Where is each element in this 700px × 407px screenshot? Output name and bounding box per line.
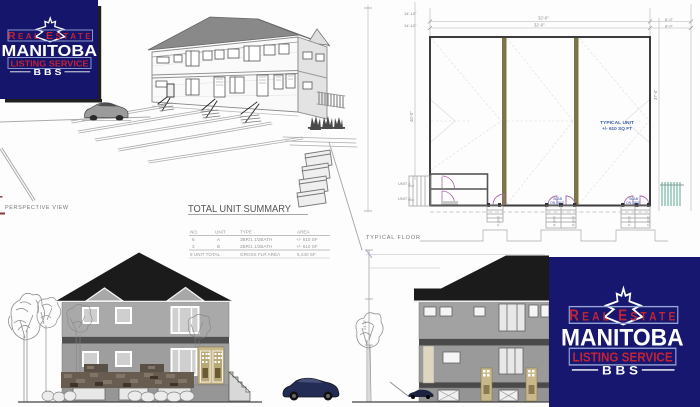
- svg-text:TYPE: TYPE: [240, 230, 252, 235]
- svg-text:8'-0": 8'-0": [665, 17, 674, 22]
- svg-text:3: 3: [192, 244, 195, 249]
- svg-text:GROSS FLR AREA: GROSS FLR AREA: [240, 252, 281, 257]
- svg-text:9 UNIT TOTAL: 9 UNIT TOTAL: [190, 252, 220, 257]
- svg-text:40'-0": 40'-0": [409, 111, 414, 122]
- svg-text:ON GRD: ON GRD: [626, 201, 641, 205]
- svg-text:14'-10": 14'-10": [404, 23, 417, 28]
- svg-text:32'-0": 32'-0": [534, 23, 545, 28]
- svg-text:2BR/1 1/2BATH: 2BR/1 1/2BATH: [240, 244, 272, 249]
- svg-text:PERSPECTIVE VIEW: PERSPECTIVE VIEW: [5, 205, 69, 211]
- svg-text:24'-0": 24'-0": [362, 319, 367, 330]
- svg-text:TYPICAL FLOOR: TYPICAL FLOOR: [366, 235, 421, 241]
- svg-text:+/- 610 SQ FT: +/- 610 SQ FT: [602, 126, 632, 131]
- svg-text:UNIT B: UNIT B: [571, 216, 575, 226]
- svg-text:3BR/1 1/2BATH: 3BR/1 1/2BATH: [240, 237, 272, 242]
- svg-text:NO.: NO.: [190, 230, 198, 235]
- svg-text:B: B: [217, 244, 220, 249]
- svg-text:32'-0": 32'-0": [538, 16, 549, 21]
- svg-text:ON GRD: ON GRD: [550, 201, 565, 205]
- svg-text:AREA: AREA: [297, 230, 310, 235]
- svg-text:TYPICAL UNIT: TYPICAL UNIT: [600, 120, 634, 125]
- svg-text:UNIT A: UNIT A: [496, 216, 500, 227]
- svg-text:+/- 610 SF: +/- 610 SF: [296, 237, 318, 242]
- svg-text:UNIT A: UNIT A: [646, 216, 650, 227]
- svg-text:UNIT A: UNIT A: [627, 216, 631, 227]
- svg-text:TOTAL UNIT SUMMARY: TOTAL UNIT SUMMARY: [188, 204, 291, 215]
- svg-text:37'-0": 37'-0": [653, 89, 658, 100]
- svg-text:8'-0": 8'-0": [665, 24, 674, 29]
- svg-text:UNIT B: UNIT B: [552, 216, 556, 226]
- svg-text:+/- 610 SF: +/- 610 SF: [296, 244, 318, 249]
- svg-text:14'-10": 14'-10": [404, 11, 417, 16]
- svg-text:UNIT 1: UNIT 1: [398, 181, 411, 186]
- svg-text:6,240 SF: 6,240 SF: [297, 252, 316, 257]
- svg-text:6: 6: [192, 237, 195, 242]
- svg-text:UNIT: UNIT: [215, 230, 226, 235]
